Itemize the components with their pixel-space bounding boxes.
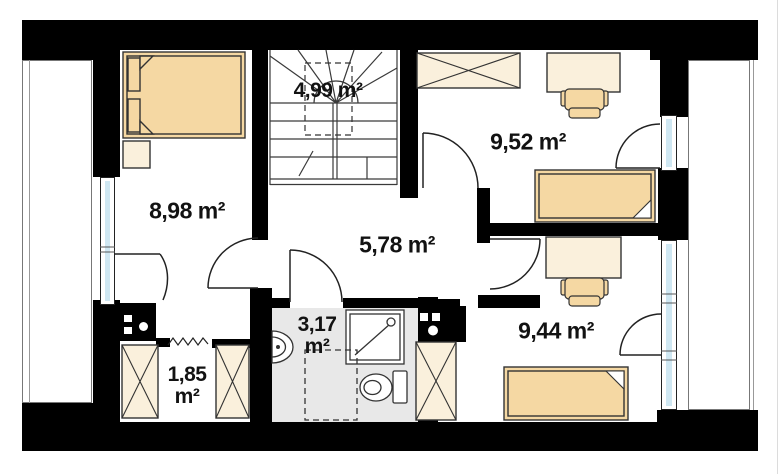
desk-room-952 bbox=[547, 53, 620, 92]
zigzag-opening-symbol bbox=[168, 338, 208, 345]
area-label-room-bottom-right: 9,44 m² bbox=[518, 318, 594, 345]
area-label-room-top-right: 9,52 m² bbox=[490, 129, 566, 156]
area-label-closet: 1,85 m² bbox=[168, 364, 207, 408]
area-label-bedroom-left: 8,98 m² bbox=[149, 198, 225, 225]
wardrobe-closet-b bbox=[216, 345, 249, 418]
chair-room-952 bbox=[561, 89, 608, 118]
desk-room-944 bbox=[546, 237, 621, 278]
floor-plan: 8,98 m² 4,99 m² 9,52 m² 5,78 m² 1,85 m² … bbox=[0, 0, 782, 474]
area-label-bathroom: 3,17 m² bbox=[298, 314, 337, 358]
chair-room-944 bbox=[561, 278, 608, 306]
wardrobe-room-944 bbox=[416, 342, 456, 420]
area-label-bathroom-line1: 3,17 bbox=[298, 314, 337, 336]
door-bedroom-hall bbox=[208, 238, 258, 288]
staircase-drawing bbox=[270, 50, 397, 185]
shower bbox=[346, 310, 404, 364]
bed-room-944 bbox=[504, 367, 628, 420]
area-label-staircase: 4,99 m² bbox=[294, 79, 363, 103]
bathroom-fixtures bbox=[272, 310, 407, 420]
door-bedroom-window-side bbox=[115, 254, 168, 300]
door-bathroom bbox=[290, 250, 342, 302]
door-room-944-window bbox=[620, 314, 661, 355]
double-bed bbox=[123, 52, 245, 138]
area-label-closet-line1: 1,85 bbox=[168, 364, 207, 386]
door-room-944-hall bbox=[490, 239, 540, 289]
bed-room-952 bbox=[535, 170, 655, 222]
door-room-952-hall bbox=[423, 133, 478, 188]
image-edge-line bbox=[777, 0, 778, 474]
nightstand bbox=[123, 141, 150, 168]
area-label-hallway: 5,78 m² bbox=[359, 232, 435, 259]
area-label-bathroom-line2: m² bbox=[298, 336, 337, 358]
toilet bbox=[360, 371, 407, 403]
door-room-952-window bbox=[616, 124, 660, 168]
wardrobe-closet-a bbox=[122, 345, 158, 418]
area-label-closet-line2: m² bbox=[168, 386, 207, 408]
wardrobe-room-952 bbox=[417, 53, 520, 88]
washbasin bbox=[272, 331, 293, 363]
